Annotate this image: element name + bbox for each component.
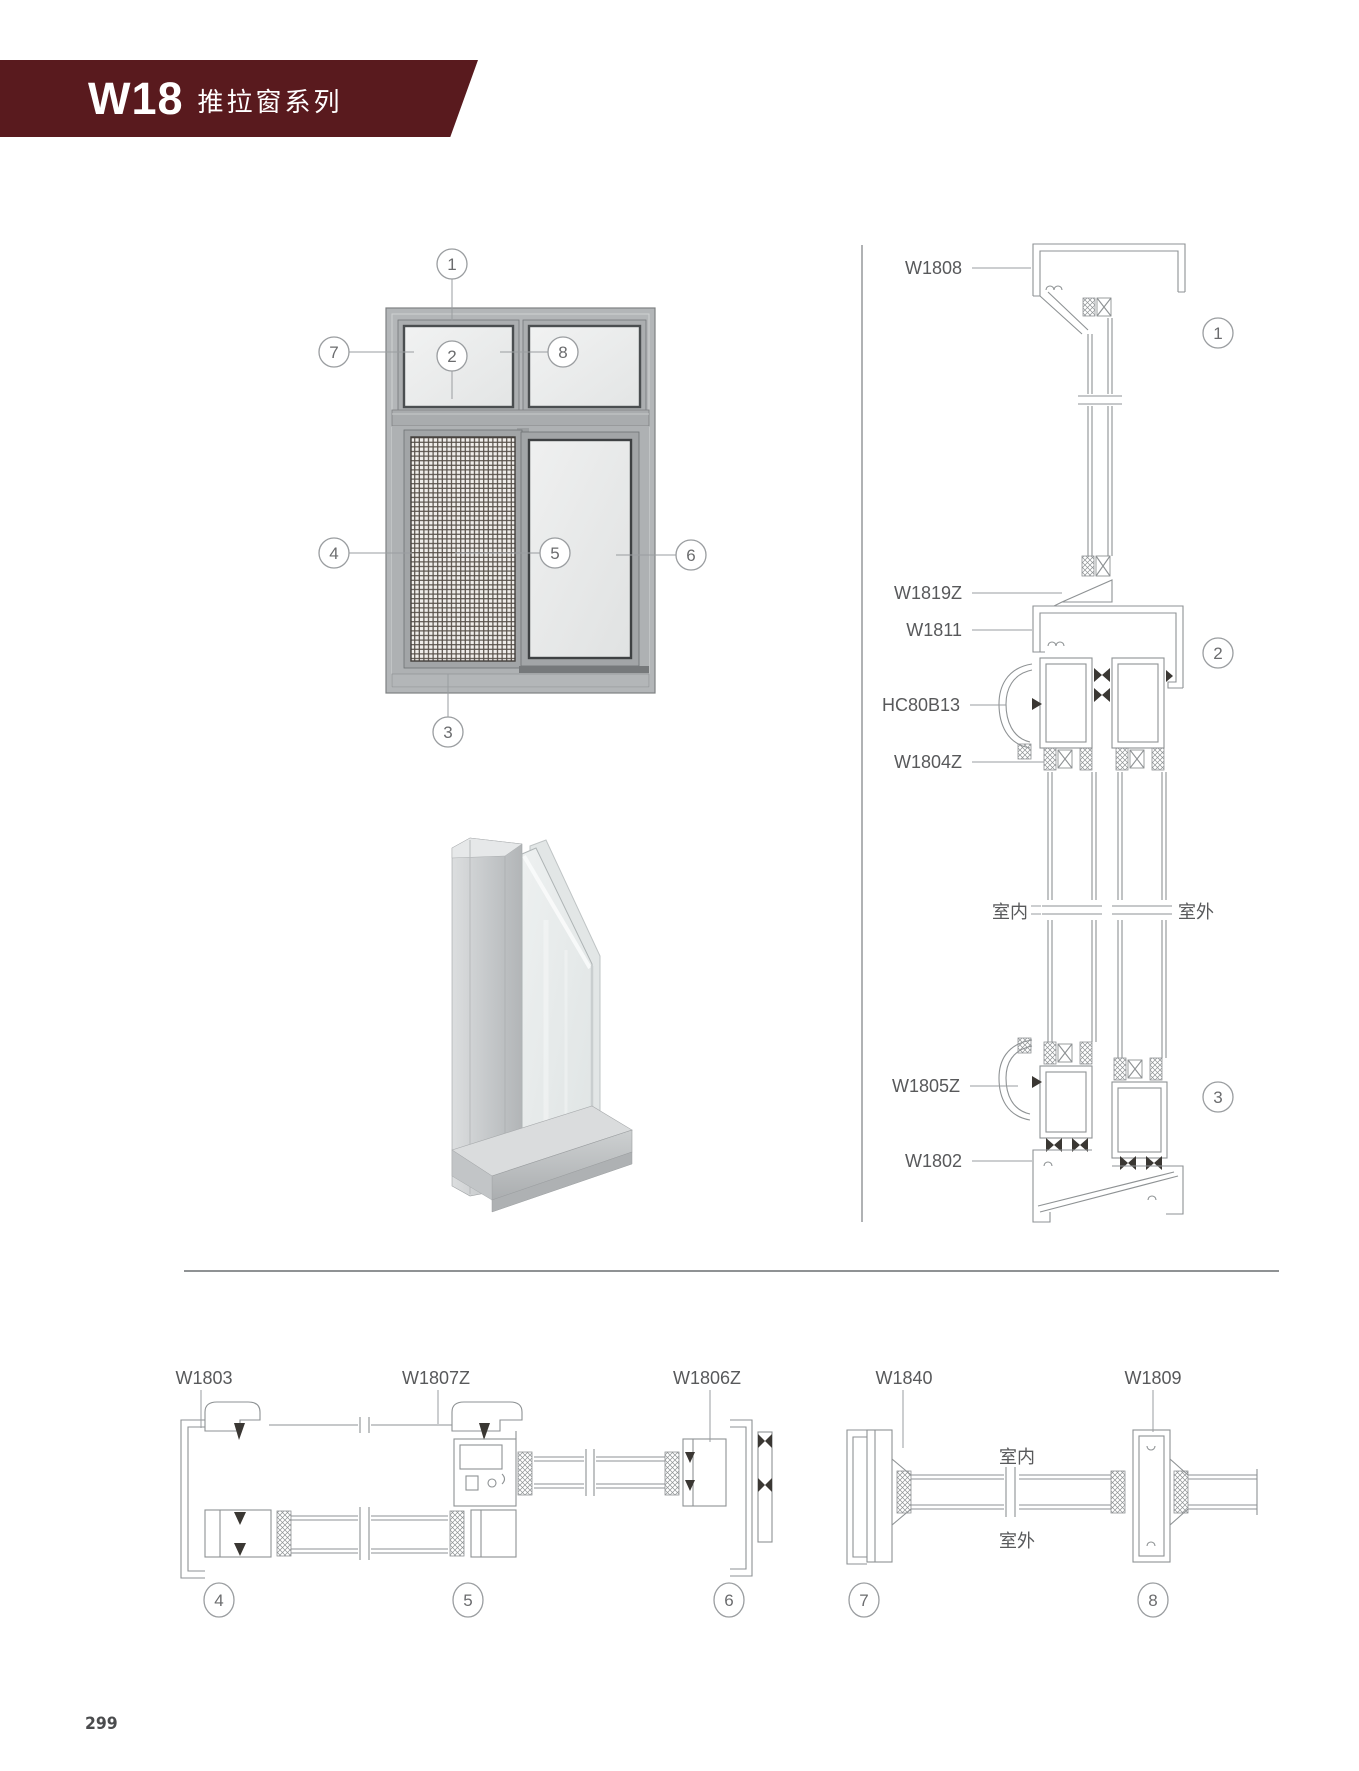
vertical-section-labels: W1808 W1819Z W1811 HC80B13 W1804Z W1805Z… bbox=[882, 258, 1233, 1171]
callout-1: 1 bbox=[437, 249, 467, 279]
section-callout-6: 6 bbox=[714, 1583, 744, 1617]
section-callout-4: 4 bbox=[204, 1583, 234, 1617]
callout-6: 6 bbox=[676, 540, 706, 570]
page-number: 299 bbox=[85, 1714, 118, 1734]
section-callout-5: 5 bbox=[453, 1583, 483, 1617]
svg-text:6: 6 bbox=[724, 1591, 733, 1610]
label-w1811: W1811 bbox=[906, 620, 962, 640]
callout-5: 5 bbox=[540, 538, 570, 568]
section-callout-8: 8 bbox=[1138, 1583, 1168, 1617]
label-w1803: W1803 bbox=[175, 1368, 232, 1388]
section-callout-7: 7 bbox=[849, 1583, 879, 1617]
label-w1819z: W1819Z bbox=[894, 583, 962, 603]
svg-text:4: 4 bbox=[329, 544, 338, 563]
label-w1804z: W1804Z bbox=[894, 752, 962, 772]
svg-text:7: 7 bbox=[859, 1591, 868, 1610]
section-callout-2: 2 bbox=[1203, 638, 1233, 668]
svg-text:4: 4 bbox=[214, 1591, 223, 1610]
svg-text:8: 8 bbox=[558, 343, 567, 362]
svg-text:1: 1 bbox=[1213, 324, 1222, 343]
horizontal-sections-drawing bbox=[181, 1402, 1257, 1578]
callout-4: 4 bbox=[319, 538, 349, 568]
catalog-page: W18 推拉窗系列 bbox=[0, 0, 1359, 1771]
svg-text:8: 8 bbox=[1148, 1591, 1157, 1610]
label-interior-bottom: 室内 bbox=[999, 1447, 1035, 1467]
svg-text:3: 3 bbox=[1213, 1088, 1222, 1107]
svg-text:1: 1 bbox=[447, 255, 456, 274]
label-w1802: W1802 bbox=[905, 1151, 962, 1171]
svg-text:2: 2 bbox=[1213, 644, 1222, 663]
label-exterior-bottom: 室外 bbox=[999, 1531, 1035, 1551]
callout-8: 8 bbox=[548, 337, 578, 367]
svg-text:5: 5 bbox=[550, 544, 559, 563]
profile-3d-render bbox=[452, 838, 632, 1212]
label-interior: 室内 bbox=[992, 902, 1028, 922]
section-callout-1: 1 bbox=[1203, 318, 1233, 348]
label-w1808: W1808 bbox=[905, 258, 962, 278]
svg-text:3: 3 bbox=[443, 723, 452, 742]
technical-drawing-canvas: 1 7 2 8 4 5 6 3 bbox=[0, 0, 1359, 1771]
label-w1807z: W1807Z bbox=[402, 1368, 470, 1388]
front-elevation-drawing bbox=[386, 308, 655, 693]
section-callout-3: 3 bbox=[1203, 1082, 1233, 1112]
svg-text:7: 7 bbox=[329, 343, 338, 362]
svg-text:5: 5 bbox=[463, 1591, 472, 1610]
callout-7: 7 bbox=[319, 337, 349, 367]
label-w1805z: W1805Z bbox=[892, 1076, 960, 1096]
label-w1840: W1840 bbox=[875, 1368, 932, 1388]
label-w1809: W1809 bbox=[1124, 1368, 1181, 1388]
callout-3: 3 bbox=[433, 717, 463, 747]
svg-text:2: 2 bbox=[447, 347, 456, 366]
svg-text:6: 6 bbox=[686, 546, 695, 565]
callout-2: 2 bbox=[437, 341, 467, 371]
label-exterior: 室外 bbox=[1178, 902, 1214, 922]
label-w1806z: W1806Z bbox=[673, 1368, 741, 1388]
label-hc80b13: HC80B13 bbox=[882, 695, 960, 715]
